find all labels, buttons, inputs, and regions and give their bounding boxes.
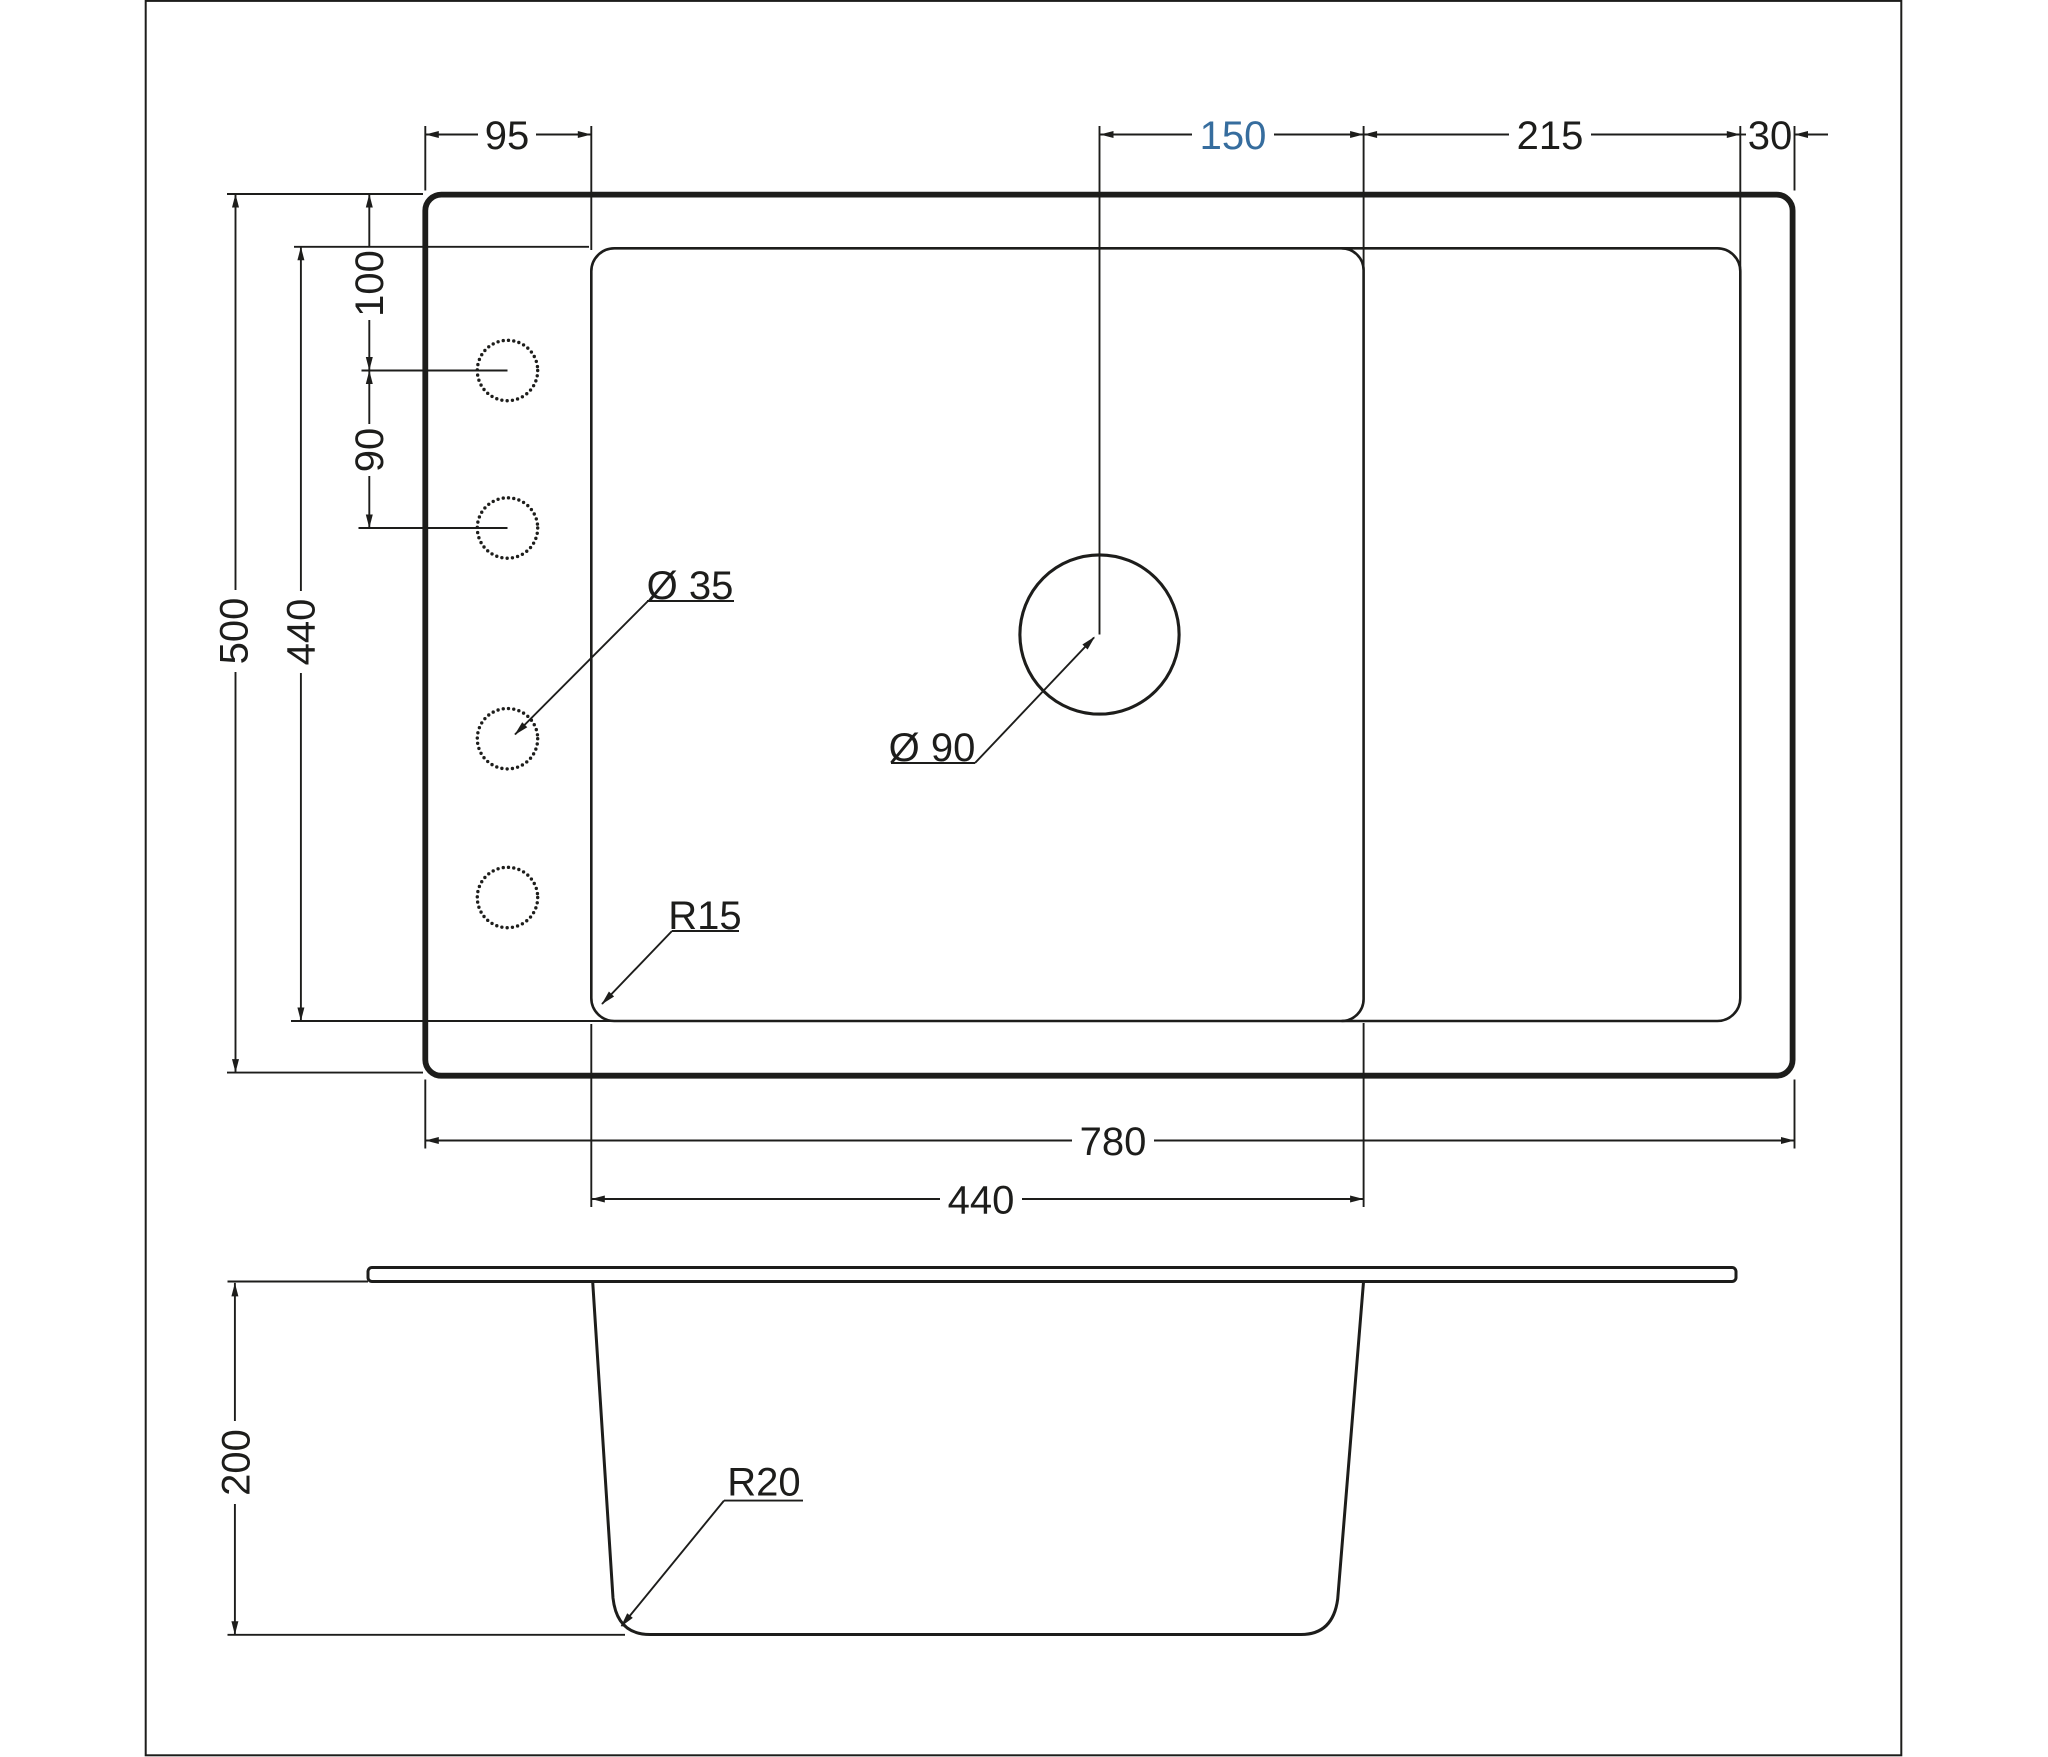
- svg-text:Ø 90: Ø 90: [889, 726, 976, 770]
- svg-text:780: 780: [1080, 1120, 1147, 1164]
- svg-text:100: 100: [348, 250, 392, 317]
- svg-text:30: 30: [1748, 114, 1793, 158]
- svg-text:150: 150: [1200, 114, 1267, 158]
- svg-text:440: 440: [280, 599, 324, 666]
- svg-text:500: 500: [213, 598, 257, 665]
- svg-text:440: 440: [948, 1179, 1015, 1223]
- svg-text:200: 200: [215, 1429, 259, 1496]
- svg-text:Ø 35: Ø 35: [647, 564, 734, 608]
- svg-text:95: 95: [485, 114, 530, 158]
- svg-text:215: 215: [1517, 114, 1584, 158]
- svg-text:90: 90: [348, 428, 392, 473]
- svg-text:R20: R20: [727, 1461, 800, 1505]
- svg-text:R15: R15: [668, 894, 741, 938]
